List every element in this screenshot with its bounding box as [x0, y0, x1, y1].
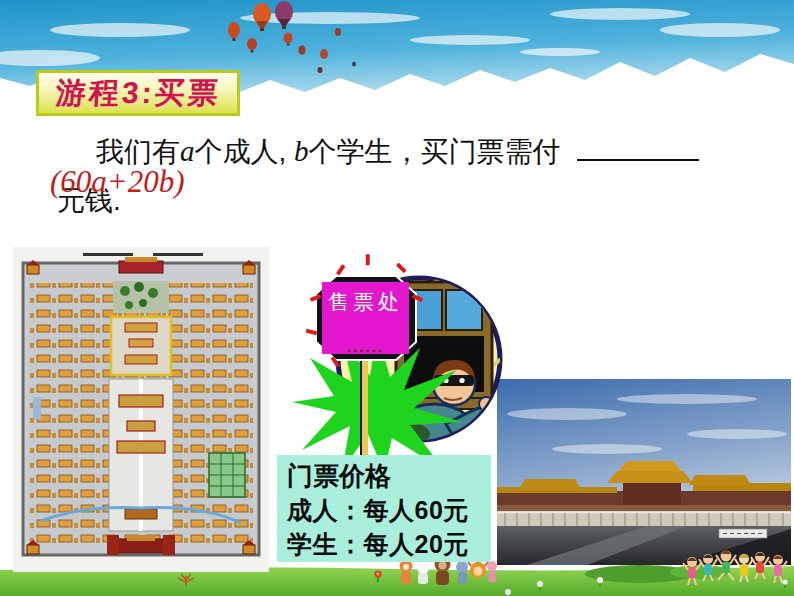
- photo-watermark: [719, 529, 767, 538]
- variable-a: a: [180, 135, 195, 167]
- answer-blank-line: [577, 155, 699, 161]
- question-part3: 个学生，买门票需付: [309, 136, 561, 167]
- price-student-line: 学生：每人20元: [287, 527, 481, 561]
- variable-b: b: [294, 135, 309, 167]
- north-gate: [119, 257, 163, 273]
- ticket-office-sign: 售票处 ......: [322, 282, 409, 354]
- question-line-1: 我们有a个成人, b个学生，买门票需付: [96, 133, 699, 171]
- green-roof-compound: [209, 453, 245, 497]
- forbidden-city-photo: [497, 379, 791, 565]
- presentation-slide: 游程3:买票 我们有a个成人, b个学生，买门票需付 元钱. (60a+20b): [0, 0, 794, 596]
- price-board: 门票价格 成人：每人60元 学生：每人20元: [277, 455, 491, 562]
- map-svg: [13, 247, 269, 572]
- spark-icon: [396, 263, 406, 273]
- spark-icon: [366, 254, 370, 265]
- ticket-office-dots: ......: [347, 342, 384, 352]
- inner-court-compound: [111, 317, 171, 375]
- forbidden-city-map-image: [13, 247, 269, 572]
- question-part2: 个成人,: [195, 136, 287, 167]
- meridian-gate: [107, 535, 175, 555]
- photo-svg: [497, 379, 791, 565]
- ticket-office-label: 售票处: [328, 288, 403, 316]
- marble-balustrade: [497, 511, 791, 526]
- handwritten-answer: (60a+20b): [50, 164, 185, 200]
- imperial-garden: [113, 281, 169, 313]
- price-adult-line: 成人：每人60元: [287, 493, 481, 527]
- west-water: [33, 397, 41, 419]
- sign-pole: [360, 352, 368, 468]
- lesson-title-banner: 游程3:买票: [36, 70, 240, 116]
- lesson-title: 游程3:买票: [54, 73, 222, 114]
- question-part1: 我们有: [96, 136, 180, 167]
- price-board-title: 门票价格: [287, 460, 481, 493]
